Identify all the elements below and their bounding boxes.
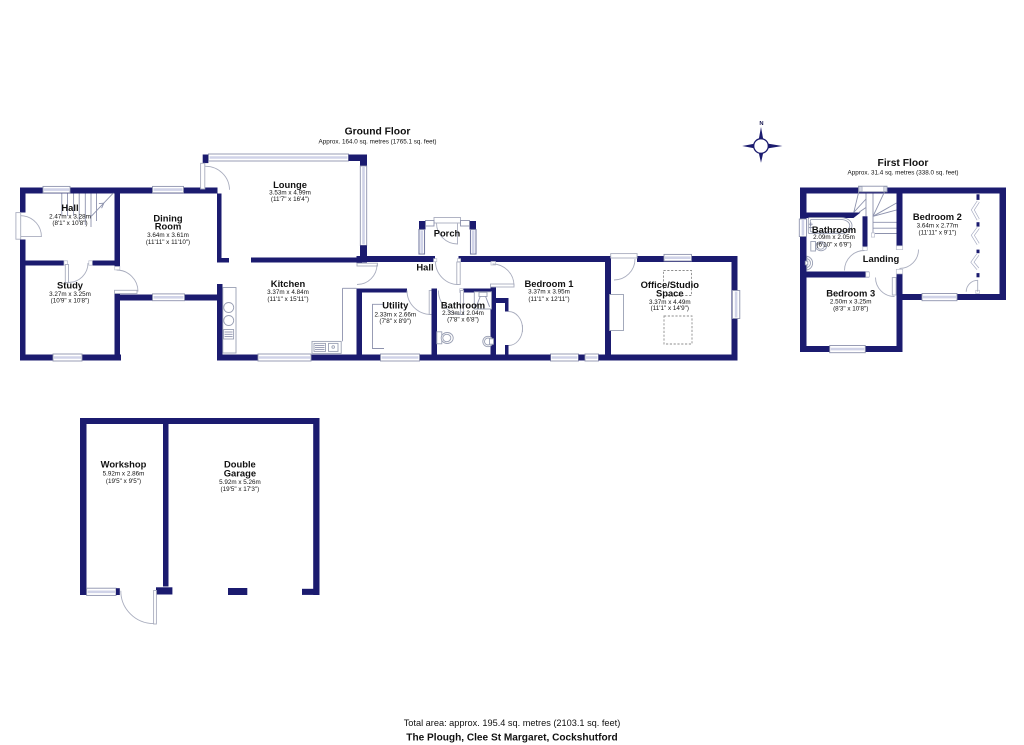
svg-text:Workshop: Workshop [101,458,147,469]
svg-text:3.37m x 4.84m: 3.37m x 4.84m [267,289,309,296]
svg-text:(6'10" x 6'9"): (6'10" x 6'9") [816,241,851,248]
svg-text:First Floor: First Floor [878,158,929,169]
svg-text:Garage: Garage [224,468,256,479]
svg-text:3.64m x 2.77m: 3.64m x 2.77m [917,223,959,230]
svg-text:Kitchen: Kitchen [271,278,306,289]
svg-text:Total area: approx. 195.4 sq.: Total area: approx. 195.4 sq. metres (21… [404,718,621,728]
svg-text:(7'8" x 8'9"): (7'8" x 8'9") [379,318,411,325]
svg-text:Space: Space [656,287,684,298]
svg-text:(11'1" x 14'9"): (11'1" x 14'9") [651,305,689,312]
svg-text:5.92m x 2.86m: 5.92m x 2.86m [103,471,145,478]
svg-text:Utility: Utility [382,300,409,311]
svg-text:(11'7" x 16'4"): (11'7" x 16'4") [271,196,309,203]
svg-text:2.09m x 2.05m: 2.09m x 2.05m [813,234,855,241]
svg-text:(11'11" x 11'10"): (11'11" x 11'10") [146,239,190,246]
svg-text:(8'3" x 10'8"): (8'3" x 10'8") [833,305,868,312]
svg-text:5.92m x 5.26m: 5.92m x 5.26m [219,479,261,486]
svg-text:Bathroom: Bathroom [441,299,485,310]
svg-text:3.64m x 3.61m: 3.64m x 3.61m [147,232,189,239]
svg-text:Porch: Porch [434,228,461,239]
svg-text:Hall: Hall [61,202,78,213]
svg-text:Bedroom 3: Bedroom 3 [826,288,875,299]
svg-text:(19'5" x 9'5"): (19'5" x 9'5") [106,478,141,485]
svg-text:Hall: Hall [416,261,433,272]
svg-text:The Plough, Clee St Margaret,: The Plough, Clee St Margaret, Cockshutfo… [406,733,617,744]
svg-text:Approx. 164.0 sq. metres (1765: Approx. 164.0 sq. metres (1765.1 sq. fee… [319,139,437,146]
svg-text:Bedroom 1: Bedroom 1 [525,278,574,289]
svg-text:Approx. 31.4 sq. metres (338.0: Approx. 31.4 sq. metres (338.0 sq. feet) [848,170,959,177]
svg-text:N: N [759,121,763,127]
svg-text:Landing: Landing [863,253,900,264]
svg-text:(19'5" x 17'3"): (19'5" x 17'3") [221,486,260,493]
svg-text:(7'8" x 6'8"): (7'8" x 6'8") [447,317,479,324]
svg-text:(10'9" x 10'8"): (10'9" x 10'8") [51,298,90,305]
svg-text:Ground Floor: Ground Floor [345,127,411,138]
svg-text:(11'1" x 15'11"): (11'1" x 15'11") [267,296,308,303]
svg-text:Lounge: Lounge [273,179,307,190]
svg-text:Bedroom 2: Bedroom 2 [913,211,962,222]
svg-text:Study: Study [57,280,84,291]
svg-text:(11'1" x 12'11"): (11'1" x 12'11") [528,296,569,303]
svg-text:(11'11" x 9'1"): (11'11" x 9'1") [919,230,957,237]
svg-text:3.37m x 3.95m: 3.37m x 3.95m [528,289,570,296]
svg-text:(8'1" x 10'8"): (8'1" x 10'8") [52,220,87,227]
svg-text:Room: Room [155,221,182,232]
